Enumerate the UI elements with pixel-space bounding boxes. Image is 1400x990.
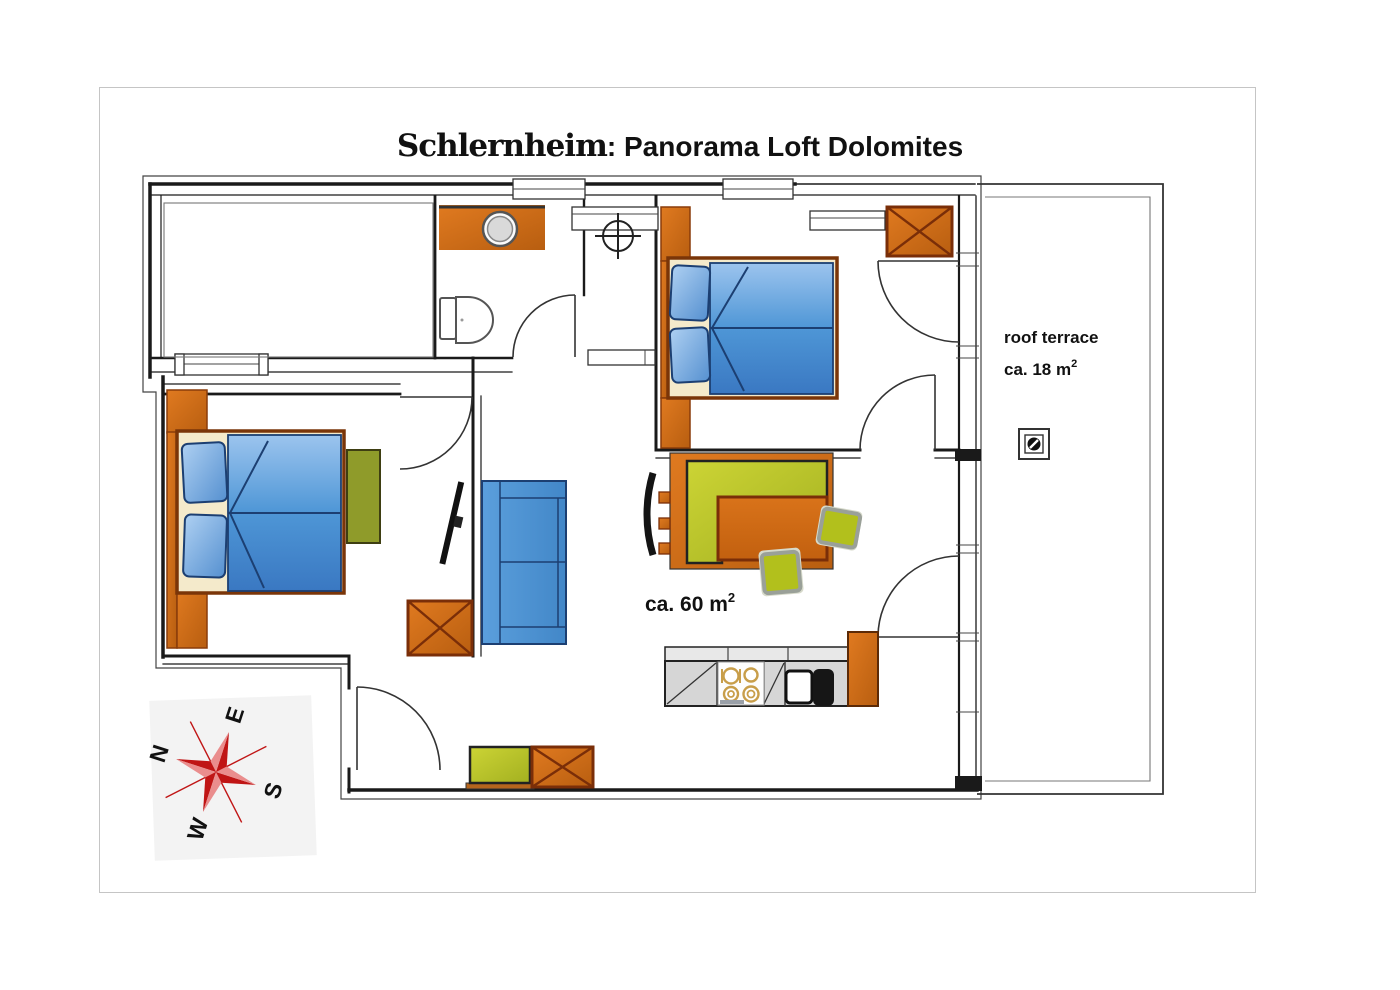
bedroom-left	[167, 390, 472, 655]
bedroom-left-door	[400, 397, 472, 469]
living-terrace-door	[878, 556, 959, 637]
storage-room	[164, 203, 433, 357]
title-apartment-name: Panorama Loft Dolomites	[616, 131, 963, 162]
terrace-label: roof terrace	[1004, 328, 1098, 347]
dining-corner-bench	[670, 453, 833, 569]
wall-tv	[439, 481, 471, 566]
stove	[718, 662, 764, 705]
tall-cabinet	[848, 632, 878, 706]
title-separator: :	[607, 131, 616, 162]
entry-door	[357, 687, 440, 770]
stool	[758, 547, 804, 596]
bedroom-terrace-door	[878, 261, 959, 342]
entry-bench	[470, 747, 530, 783]
bedroom-right-door	[860, 375, 935, 450]
nightstand	[347, 450, 380, 543]
kitchen-sink	[786, 671, 812, 703]
floor-plan: Schlernheim: Panorama Loft Dolomites	[0, 0, 1400, 990]
toilet	[440, 297, 493, 343]
title-property-name: Schlernheim	[397, 128, 608, 164]
living-area-label: ca. 60 m2	[645, 590, 735, 616]
pillow	[670, 265, 711, 321]
terrace-drain-icon	[1019, 429, 1049, 459]
page-background: Schlernheim: Panorama Loft Dolomites	[0, 0, 1400, 990]
sofa	[482, 481, 566, 644]
wardrobe	[887, 207, 952, 256]
double-bed	[177, 431, 344, 593]
bedroom-right	[661, 207, 952, 448]
terrace-area-label: ca. 18 m2	[1004, 358, 1077, 379]
roof-terrace: roof terrace ca. 18 m2	[1004, 328, 1098, 459]
dining-tv	[647, 473, 670, 555]
kitchen-appliance	[813, 669, 834, 706]
wardrobe	[532, 747, 593, 787]
bathroom-door	[513, 295, 575, 357]
page-title: Schlernheim: Panorama Loft Dolomites	[397, 128, 963, 164]
wardrobe	[408, 601, 472, 655]
kitchen	[665, 632, 878, 706]
stool	[815, 505, 863, 552]
pillow	[670, 327, 711, 383]
entry-area	[466, 747, 593, 789]
double-bed	[668, 258, 837, 398]
pillow	[182, 442, 228, 503]
pillow	[183, 514, 227, 577]
compass-rose: N E S W	[125, 685, 317, 862]
terrace-walls	[977, 184, 1163, 794]
